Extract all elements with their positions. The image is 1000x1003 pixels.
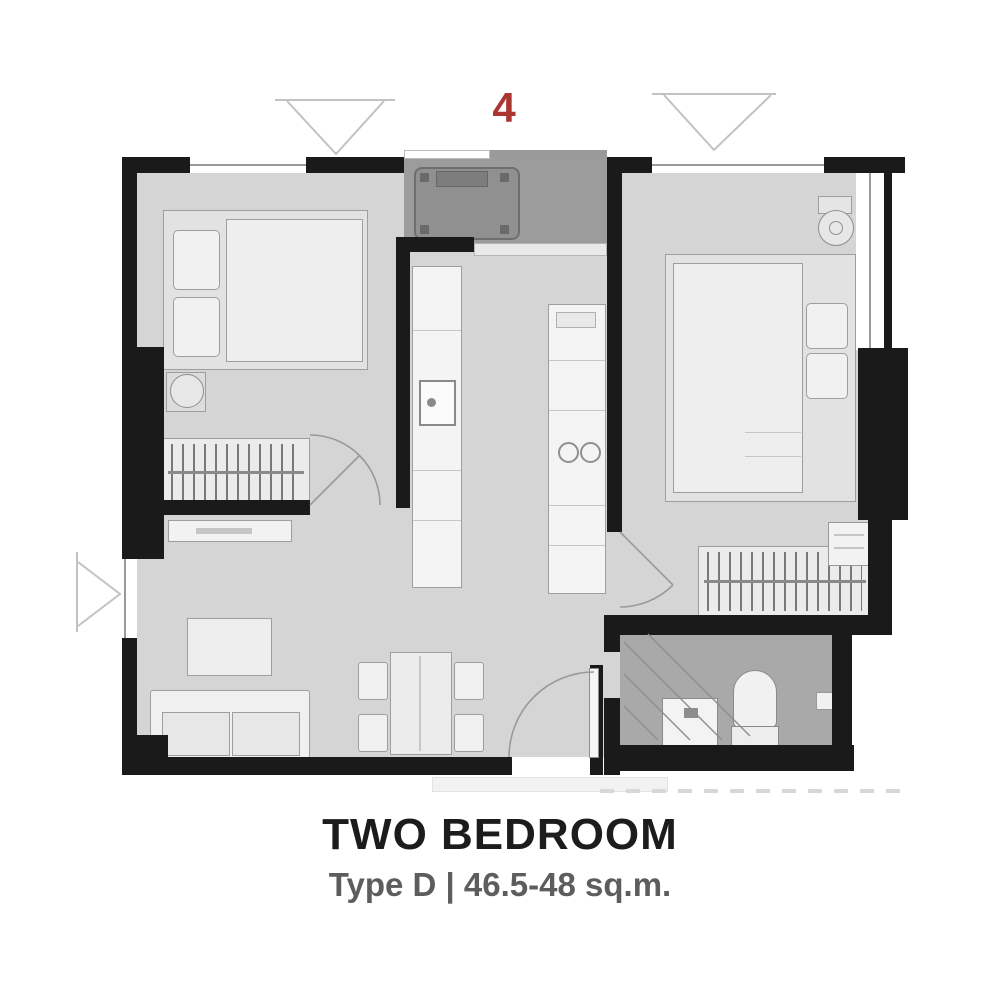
washing-machine-foot <box>420 225 429 234</box>
balcony-dashed-line <box>600 789 905 793</box>
kitchen-counter-shelf-line <box>549 360 605 361</box>
wall-bedroom2-west <box>607 172 622 532</box>
kitchen-sink-drain-icon <box>427 398 436 407</box>
toilet-tank <box>731 726 779 746</box>
bedroom2-pillow <box>806 303 848 349</box>
wall-left-column <box>122 347 164 559</box>
kitchen-appliance <box>556 312 596 328</box>
washing-machine-panel <box>436 171 488 187</box>
vent-marker-icon <box>275 100 395 154</box>
wall-bathroom-east <box>832 631 852 747</box>
wall-bedroom1-south <box>137 500 310 515</box>
sofa-cushion <box>232 712 300 756</box>
dining-table-centerline <box>419 656 421 751</box>
bedroom1-wardrobe-rail <box>168 471 304 474</box>
kitchen-counter-left <box>412 266 462 588</box>
bedroom1-pillow <box>173 230 220 290</box>
kitchen-counter-shelf-line <box>413 520 461 521</box>
wall-top <box>607 157 652 173</box>
kitchen-counter-shelf-line <box>413 470 461 471</box>
bathroom-floor <box>620 635 832 745</box>
wall-top <box>824 157 905 173</box>
wall-top <box>306 157 404 173</box>
vent-marker-icon <box>77 552 120 632</box>
toilet-icon <box>733 670 777 728</box>
bedroom2-window <box>652 157 824 173</box>
entrance-door-leaf <box>589 668 599 758</box>
kitchen-counter-shelf-line <box>549 410 605 411</box>
sofa-cushion <box>162 712 230 756</box>
wall-left <box>122 157 137 349</box>
bedroom2-lamp-inner <box>829 221 843 235</box>
kitchen-counter-shelf-line <box>413 330 461 331</box>
kitchen-pass-counter <box>474 243 607 256</box>
dining-table <box>390 652 452 755</box>
kitchen-counter-shelf-line <box>549 545 605 546</box>
washing-machine-foot <box>500 225 509 234</box>
kitchen-counter-shelf-line <box>549 505 605 506</box>
ac-cabinet <box>828 522 870 566</box>
wall-bedroom1-east <box>396 250 410 508</box>
bedroom1-pillow <box>173 297 220 357</box>
dining-chair <box>358 714 388 752</box>
wall-bathroom-top <box>604 615 892 635</box>
stove-burner-icon <box>580 442 601 463</box>
dining-chair <box>358 662 388 700</box>
bedroom2-pillow <box>806 353 848 399</box>
bedroom2-side-window <box>856 172 884 350</box>
dining-chair <box>454 714 484 752</box>
wall-right <box>884 170 892 350</box>
kitchen-sink <box>419 380 456 426</box>
bathroom-faucet-icon <box>684 708 698 718</box>
wall-bottom <box>122 757 512 775</box>
laundry-opening-threshold <box>404 150 490 159</box>
stove-burner-icon <box>558 442 579 463</box>
living-room-window <box>117 558 135 640</box>
bedroom1-mattress <box>226 219 363 362</box>
ac-cabinet-line <box>834 547 864 549</box>
dining-chair <box>454 662 484 700</box>
washing-machine-foot <box>420 173 429 182</box>
washing-machine-foot <box>500 173 509 182</box>
bedroom2-wardrobe-rail <box>704 580 866 583</box>
coffee-table <box>187 618 272 676</box>
bedroom2-blanket-fold <box>745 456 801 457</box>
plan-title: TWO BEDROOM <box>0 810 1000 860</box>
floor-plan-page: 4 TWO BEDROOM Type D | 46.5-48 sq.m. <box>0 0 1000 1003</box>
vent-marker-icon <box>652 94 776 150</box>
bedroom2-blanket-fold <box>745 432 801 433</box>
bedroom2-mattress <box>673 263 803 493</box>
bedroom1-lamp-icon <box>170 374 204 408</box>
bedroom1-window <box>190 157 306 173</box>
wall-bathroom-bottom <box>604 745 854 771</box>
laundry-top-strip <box>490 150 607 159</box>
wall-right <box>868 520 892 632</box>
wall-right-column <box>858 348 908 520</box>
unit-number: 4 <box>478 84 530 132</box>
exterior-notch <box>852 635 892 757</box>
bathroom-sink <box>662 698 718 746</box>
tv-console-detail <box>196 528 252 534</box>
ac-cabinet-line <box>834 534 864 536</box>
plan-subtitle: Type D | 46.5-48 sq.m. <box>0 866 1000 904</box>
